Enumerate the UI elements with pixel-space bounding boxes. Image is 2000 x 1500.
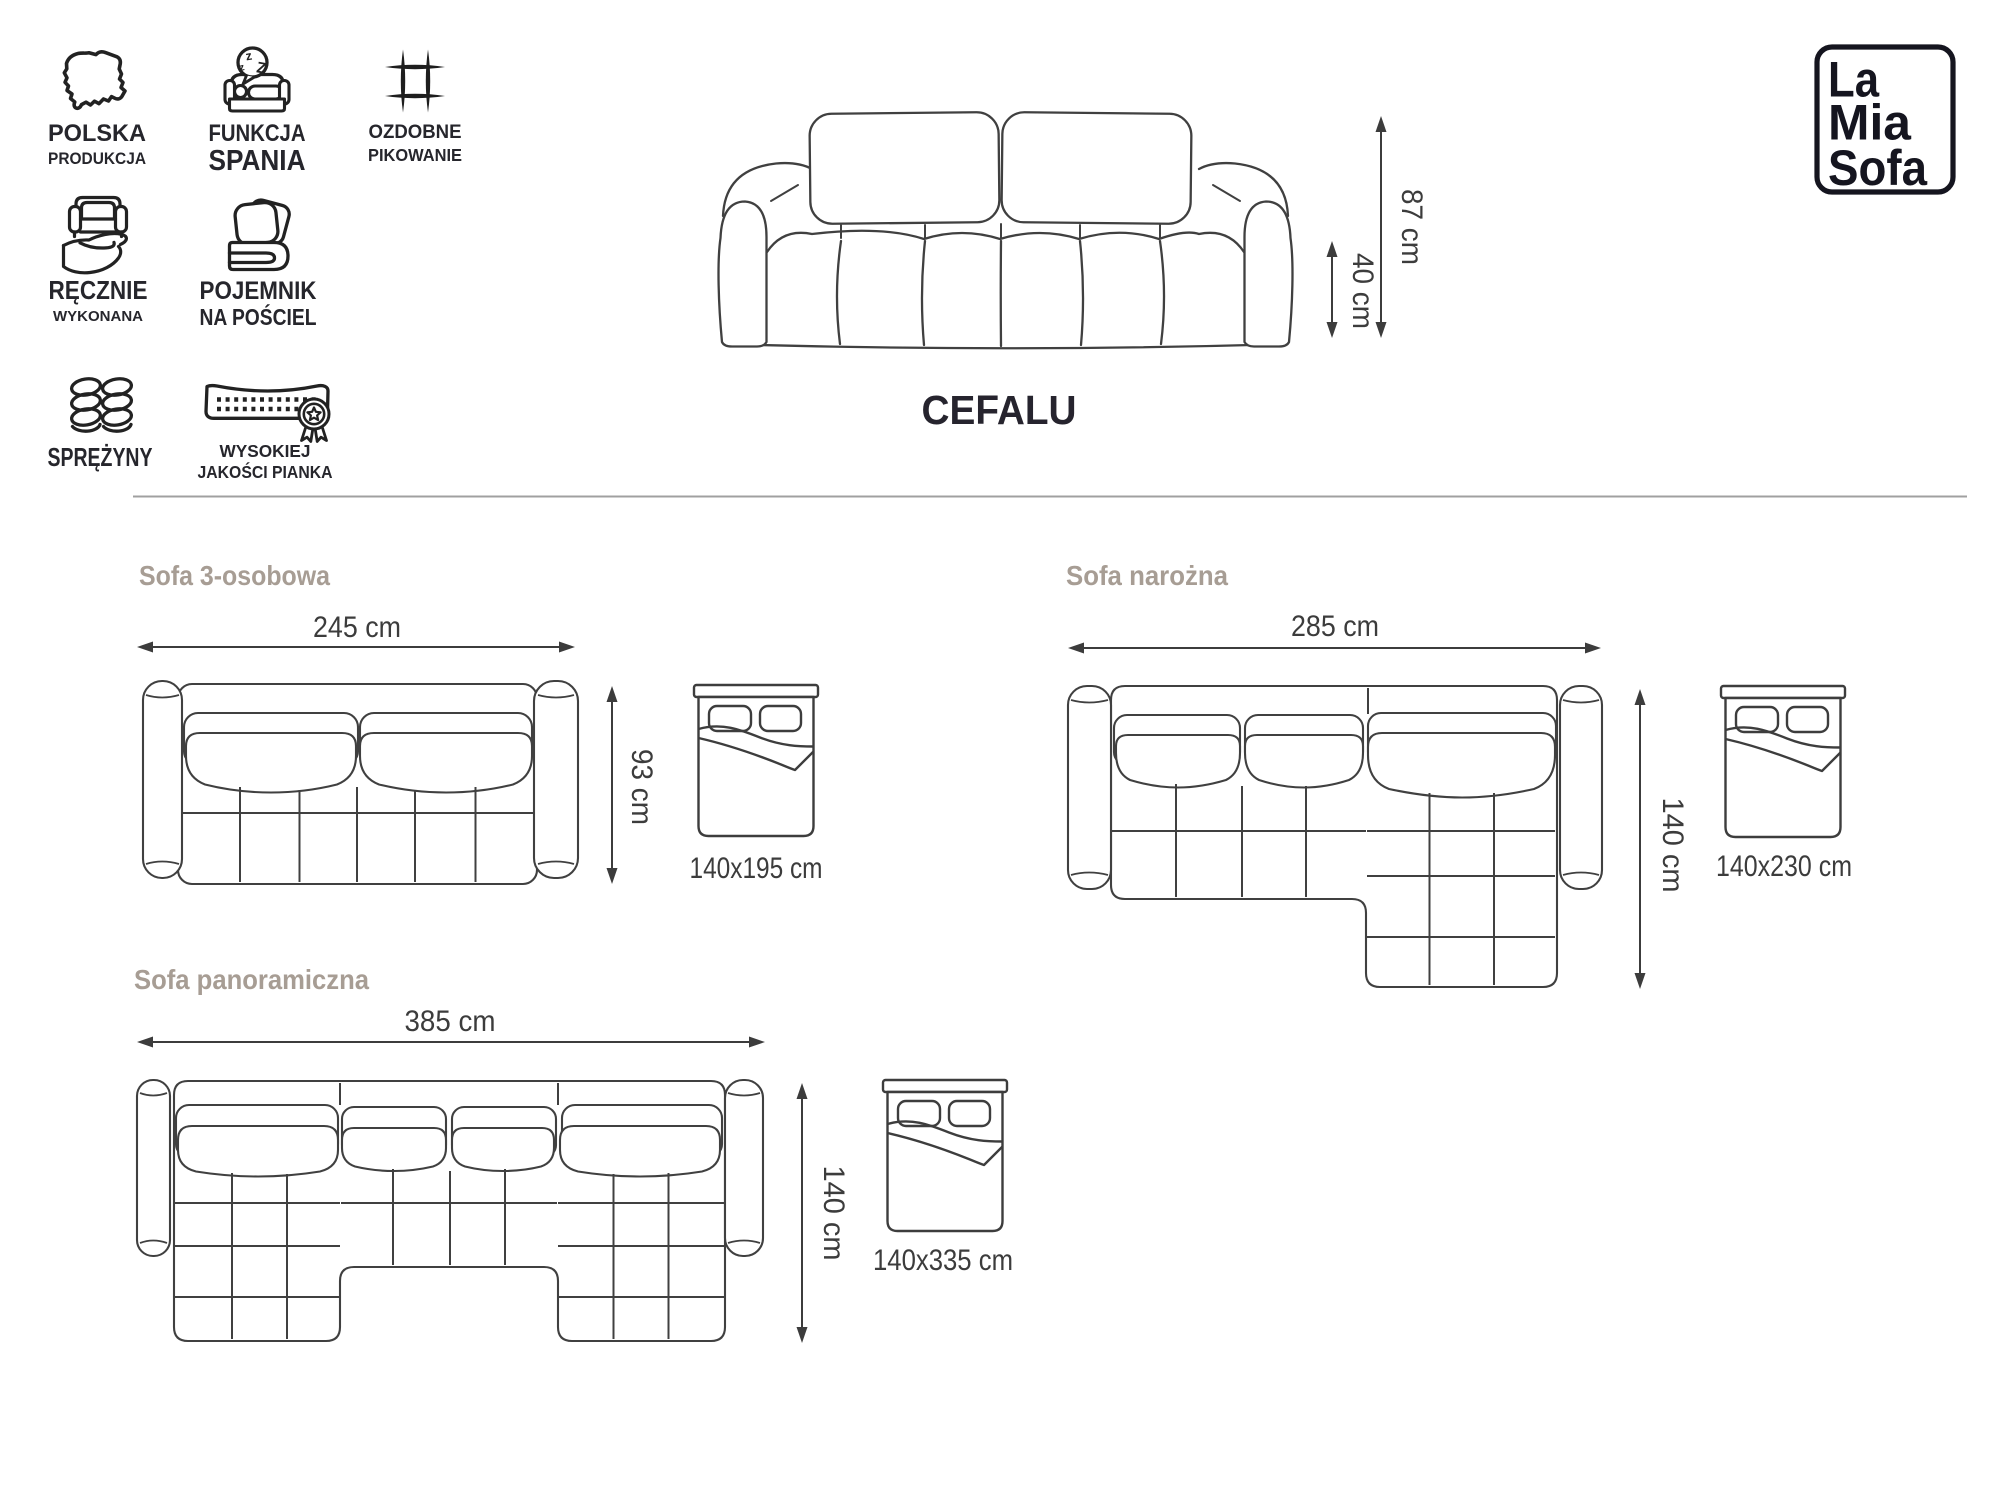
svg-text:140x335 cm: 140x335 cm xyxy=(873,1244,1013,1277)
svg-text:Sofa: Sofa xyxy=(1828,140,1928,196)
svg-text:PIKOWANIE: PIKOWANIE xyxy=(368,145,462,165)
svg-text:93 cm: 93 cm xyxy=(625,749,658,825)
svg-text:385 cm: 385 cm xyxy=(405,1005,496,1038)
svg-text:RĘCZNIE: RĘCZNIE xyxy=(49,275,148,305)
svg-text:245 cm: 245 cm xyxy=(313,611,401,644)
svg-text:140 cm: 140 cm xyxy=(817,1166,850,1261)
svg-text:NA POŚCIEL: NA POŚCIEL xyxy=(200,303,317,330)
svg-text:87 cm: 87 cm xyxy=(1395,189,1428,265)
svg-text:285 cm: 285 cm xyxy=(1291,610,1379,643)
svg-text:Sofa narożna: Sofa narożna xyxy=(1066,560,1228,591)
svg-text:POJEMNIK: POJEMNIK xyxy=(200,277,317,305)
svg-text:SPANIA: SPANIA xyxy=(209,145,306,177)
svg-text:SPRĘŻYNY: SPRĘŻYNY xyxy=(48,442,153,472)
svg-text:Sofa panoramiczna: Sofa panoramiczna xyxy=(134,964,369,995)
svg-text:WYSOKIEJ: WYSOKIEJ xyxy=(220,441,311,461)
svg-text:140 cm: 140 cm xyxy=(1656,798,1689,893)
svg-text:PRODUKCJA: PRODUKCJA xyxy=(48,149,146,168)
svg-text:OZDOBNE: OZDOBNE xyxy=(369,121,462,143)
svg-text:FUNKCJA: FUNKCJA xyxy=(209,120,306,147)
svg-text:WYKONANA: WYKONANA xyxy=(53,309,144,325)
svg-text:Sofa 3-osobowa: Sofa 3-osobowa xyxy=(139,560,330,591)
svg-text:JAKOŚCI PIANKA: JAKOŚCI PIANKA xyxy=(198,461,333,482)
svg-text:140x195 cm: 140x195 cm xyxy=(690,852,823,885)
svg-text:POLSKA: POLSKA xyxy=(48,120,146,147)
svg-text:CEFALU: CEFALU xyxy=(922,387,1077,433)
svg-text:140x230 cm: 140x230 cm xyxy=(1716,850,1852,883)
svg-text:40 cm: 40 cm xyxy=(1346,253,1379,329)
